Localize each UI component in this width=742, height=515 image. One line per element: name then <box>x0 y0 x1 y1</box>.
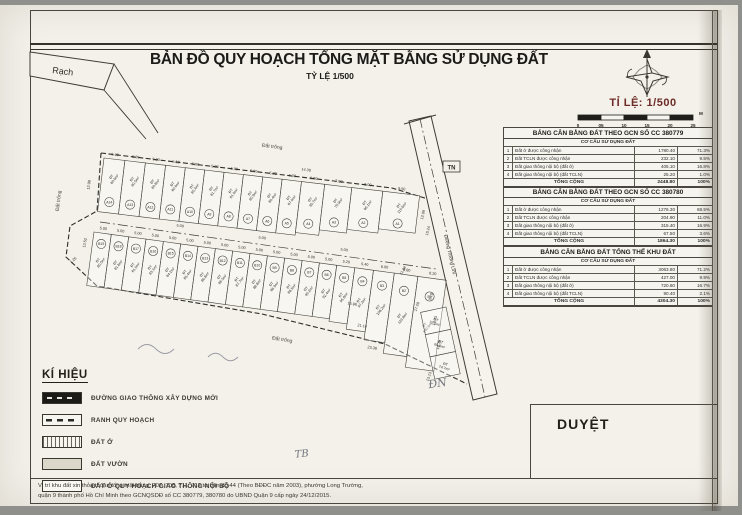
svg-text:B14: B14 <box>185 254 191 258</box>
svg-text:5.00: 5.00 <box>134 231 142 236</box>
svg-text:8.20: 8.20 <box>429 271 437 276</box>
dimension-label: 12.98 <box>86 180 91 190</box>
table-row: 4Đất giao thông nội bộ (đất TCLN)90.402.… <box>504 290 712 298</box>
svg-text:A3: A3 <box>332 221 336 225</box>
approval-label: DUYỆT <box>557 416 717 432</box>
footnote-line2: quận 9 thành phố Hồ Chí Minh theo GCNQSD… <box>38 492 558 502</box>
table-row: 3Đất giao thông nội bộ (đất ở)315.4016.9… <box>504 222 712 230</box>
table-subtitle: CƠ CẤU SỬ DỤNG ĐẤT <box>504 139 712 147</box>
table-total-row: TỔNG CỘNG1864.30100% <box>504 238 712 246</box>
svg-text:A14: A14 <box>106 200 112 204</box>
svg-text:5.00: 5.00 <box>117 229 125 234</box>
svg-text:A6: A6 <box>265 219 269 223</box>
svg-text:A8: A8 <box>227 215 231 219</box>
svg-text:B10: B10 <box>254 264 260 268</box>
dimension-label: 5.00 <box>340 248 348 253</box>
lot-A2: 8.00ĐT96.1m²A2 <box>347 182 383 233</box>
svg-text:5.30: 5.30 <box>132 155 140 160</box>
dimension-label: 5.00 <box>176 224 184 229</box>
dimension-label: 10.24 <box>425 226 431 236</box>
svg-text:5.00: 5.00 <box>221 243 229 248</box>
land-balance-table: BẢNG CÂN BẰNG ĐẤT THEO GCN SỐ CC 380780C… <box>503 187 713 247</box>
svg-text:B2: B2 <box>402 289 406 293</box>
dimension-label: 5.00 <box>258 236 266 241</box>
table-row: 3Đất giao thông nội bộ (đất ở)720.6016.7… <box>504 282 712 290</box>
svg-text:5.10: 5.10 <box>172 160 180 165</box>
svg-text:5.00: 5.00 <box>273 250 281 255</box>
svg-text:B16: B16 <box>150 249 156 253</box>
svg-text:B19: B19 <box>98 242 104 246</box>
footnote-line1: Vị trí khu đất xin thỏa thuận tổng mặt b… <box>38 482 558 492</box>
table-title: BẢNG CÂN BẰNG ĐẤT TỔNG THỂ KHU ĐẤT <box>504 247 712 258</box>
table-title: BẢNG CÂN BẰNG ĐẤT THEO GCN SỐ CC 380779 <box>504 128 712 139</box>
page-title: BẢN ĐỒ QUY HOẠCH TỔNG MẶT BẰNG SỬ DỤNG Đ… <box>150 51 510 69</box>
handwritten-tb: TB <box>294 448 309 460</box>
svg-text:B11: B11 <box>237 261 243 265</box>
pencil-mark <box>208 353 238 361</box>
svg-text:A11: A11 <box>167 208 173 212</box>
svg-text:6.00: 6.00 <box>310 176 318 181</box>
table-row: 3Đất giao thông nội bộ (đất ở)405.1016.8… <box>504 163 712 171</box>
svg-text:5.00: 5.00 <box>238 245 246 250</box>
legend-swatch-dat-o <box>42 436 82 448</box>
legend-swatch-dat-vuon <box>42 458 82 470</box>
legend-item-boundary: RANH QUY HOẠCH <box>42 413 282 427</box>
svg-text:5.20: 5.20 <box>342 260 350 265</box>
svg-text:5.40: 5.40 <box>111 152 119 157</box>
land-balance-table: BẢNG CÂN BẰNG ĐẤT TỔNG THỂ KHU ĐẤTCƠ CẤU… <box>503 246 713 307</box>
dimension-label: 12.99 <box>420 210 426 220</box>
table-row: 4Đất giao thông nội bộ (đất TCLN)25.201.… <box>504 171 712 179</box>
svg-text:B18: B18 <box>115 245 121 249</box>
svg-text:5.20: 5.20 <box>152 157 160 162</box>
svg-text:5.00: 5.00 <box>325 257 333 262</box>
table-subtitle: CƠ CẤU SỬ DỤNG ĐẤT <box>504 258 712 266</box>
legend-swatch-road-new <box>42 392 82 404</box>
svg-text:B3: B3 <box>380 284 384 288</box>
dimension-label: 14.39 <box>301 167 311 172</box>
svg-text:5.00: 5.00 <box>169 236 177 241</box>
svg-text:B15: B15 <box>168 252 174 256</box>
page-title-scale: TỶ LỆ 1/500 <box>150 71 510 81</box>
legend-label: ĐẤT Ở <box>91 439 113 446</box>
dimension-label: 13.52 <box>82 238 88 248</box>
compass-north-icon <box>592 47 702 99</box>
table-title: BẢNG CÂN BẰNG ĐẤT THEO GCN SỐ CC 380780 <box>504 188 712 199</box>
dimension-label: 1.26 <box>69 256 77 264</box>
legend-title: KÍ HIỆU <box>42 369 88 383</box>
lot-A1: 9.50ĐT115.9m²A1 <box>378 187 419 234</box>
svg-text:5.00: 5.00 <box>288 173 296 178</box>
scale-ratio-label: TỈ LỆ: 1/500 <box>588 97 698 109</box>
svg-text:B8: B8 <box>290 268 294 272</box>
svg-text:5.00: 5.00 <box>269 171 277 176</box>
legend-swatch-boundary <box>42 414 82 426</box>
scanned-planning-map: { "title": { "line1": "BẢN ĐỒ QUY HOẠCH … <box>0 0 742 510</box>
svg-text:A1: A1 <box>396 222 400 226</box>
svg-text:6.00: 6.00 <box>381 265 389 270</box>
approval-box: DUYỆT <box>530 404 717 479</box>
svg-text:B6: B6 <box>325 273 329 277</box>
svg-text:A13: A13 <box>127 203 133 207</box>
lot-A3: 7.00ĐT75.9m²A3 <box>319 179 352 233</box>
svg-text:5.00: 5.00 <box>255 248 263 253</box>
svg-text:A5: A5 <box>285 222 289 226</box>
svg-text:A4: A4 <box>306 222 310 226</box>
legend-item-road-new: ĐƯỜNG GIAO THÔNG XÂY DỰNG MỚI <box>42 391 282 405</box>
table-row: 2Đất TCLN được công nhận232.109.5% <box>504 155 712 163</box>
table-row: 1Đất ở được công nhận3063.8071.2% <box>504 266 712 274</box>
table-total-row: TỔNG CỘNG4304.30100% <box>504 298 712 306</box>
svg-text:5.00: 5.00 <box>186 238 194 243</box>
dimension-label: 23.38 <box>367 345 377 350</box>
table-total-row: TỔNG CỘNG2448.80100% <box>504 179 712 187</box>
title-block: BẢN ĐỒ QUY HOẠCH TỔNG MẶT BẰNG SỬ DỤNG Đ… <box>150 51 510 81</box>
svg-text:5.00: 5.00 <box>211 164 219 169</box>
legend-item-dat-vuon: ĐẤT VƯỜN <box>42 457 282 471</box>
corner-label-tn: TN <box>448 166 456 172</box>
land-balance-table: BẢNG CÂN BẰNG ĐẤT THEO GCN SỐ CC 380779C… <box>503 127 713 187</box>
vacant-land-label: Đất trống <box>272 335 293 344</box>
svg-text:5.00: 5.00 <box>192 162 200 167</box>
svg-text:B17: B17 <box>133 247 139 251</box>
scan-fold-shadow <box>698 10 722 511</box>
svg-text:B4: B4 <box>360 280 364 284</box>
vacant-land-label: Đất trống <box>262 143 283 151</box>
svg-text:B9: B9 <box>273 266 277 270</box>
svg-text:A7: A7 <box>246 217 250 221</box>
svg-text:5.00: 5.00 <box>99 226 107 231</box>
svg-text:A9: A9 <box>207 212 211 216</box>
svg-text:8.00: 8.00 <box>364 182 372 187</box>
svg-text:5.00: 5.00 <box>230 167 238 172</box>
table-row: 1Đất ở được công nhận1780.4071.3% <box>504 147 712 155</box>
svg-text:B13: B13 <box>202 256 208 260</box>
svg-text:5.00: 5.00 <box>290 252 298 257</box>
legend: KÍ HIỆU ĐƯỜNG GIAO THÔNG XÂY DỰNG MỚIRAN… <box>42 365 282 493</box>
svg-text:A2: A2 <box>361 221 365 225</box>
svg-text:B12: B12 <box>220 259 226 263</box>
table-subtitle: CƠ CẤU SỬ DỤNG ĐẤT <box>504 198 712 206</box>
legend-label: RANH QUY HOẠCH <box>91 417 154 424</box>
svg-text:5.00: 5.00 <box>307 255 315 260</box>
legend-item-dat-o: ĐẤT Ở <box>42 435 282 449</box>
svg-text:7.00: 7.00 <box>335 179 343 184</box>
lot-row-B: 5.00ĐT80.0m²B195.00ĐT81.8m²B185.00ĐT81.5… <box>87 226 447 371</box>
legend-label: ĐẤT VƯỜN <box>91 461 128 468</box>
paper-sheet: RạchĐường Trường Lưu5.40ĐT80.9m²A145.30Đ… <box>0 5 738 506</box>
svg-text:B5: B5 <box>342 276 346 280</box>
svg-text:B7: B7 <box>307 271 311 275</box>
table-row: 2Đất TCLN được công nhận427.009.9% <box>504 274 712 282</box>
legend-label: ĐƯỜNG GIAO THÔNG XÂY DỰNG MỚI <box>91 395 218 402</box>
svg-text:5.00: 5.00 <box>250 169 258 174</box>
table-row: 1Đất ở được công nhận1276.3068.5% <box>504 206 712 214</box>
footnote: Vị trí khu đất xin thỏa thuận tổng mặt b… <box>38 482 558 501</box>
land-balance-tables: BẢNG CÂN BẰNG ĐẤT THEO GCN SỐ CC 380779C… <box>503 127 713 307</box>
svg-text:5.00: 5.00 <box>203 241 211 246</box>
svg-text:5.40: 5.40 <box>361 262 369 267</box>
handwritten-dn: ĐN <box>426 376 447 392</box>
table-row: 4Đất giao thông nội bộ (đất TCLN)67.503.… <box>504 230 712 238</box>
lot-row-A: 5.40ĐT80.9m²A145.30ĐT80.5m²A135.20ĐT80.8… <box>98 152 420 235</box>
svg-text:A12: A12 <box>147 205 153 209</box>
pencil-mark <box>138 345 174 354</box>
scan-fold-line <box>712 10 713 511</box>
vacant-land-label: Đất trống <box>55 190 63 211</box>
table-row: 2Đất TCLN được công nhận204.9011.0% <box>504 214 712 222</box>
svg-text:5.00: 5.00 <box>151 233 159 238</box>
svg-text:A10: A10 <box>187 210 193 214</box>
